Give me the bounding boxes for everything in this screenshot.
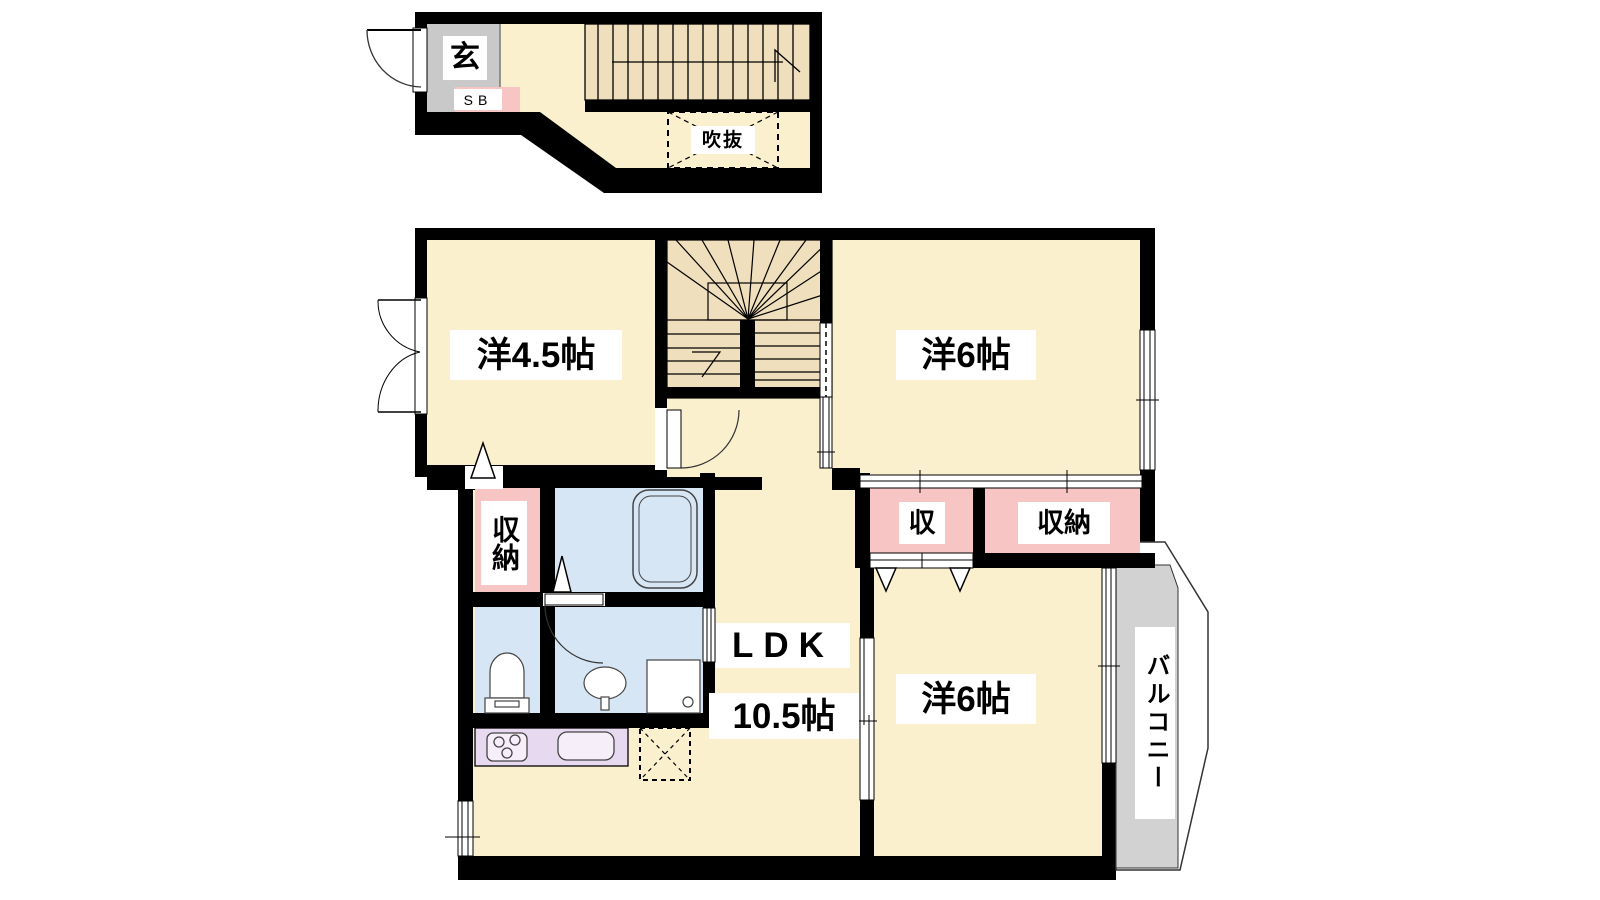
stove [487, 733, 527, 761]
bathroom [555, 488, 703, 592]
void-label: 吹抜 [691, 126, 755, 154]
closet-right-label: 収納 [1018, 502, 1110, 544]
ldk-label: LDK [716, 623, 850, 668]
room-6-top-label: 洋6帖 [896, 330, 1036, 380]
staircase-1f [585, 24, 810, 100]
ldk-wall-recess [703, 608, 715, 662]
entrance-label: 玄 [443, 36, 487, 80]
closet-small-label: 収 [899, 502, 945, 544]
double-casement-window [378, 298, 427, 414]
washing-machine-pan [647, 660, 700, 713]
kitchen [475, 728, 628, 766]
ldk-size-label: 10.5帖 [709, 693, 859, 739]
first-floor-plan [367, 12, 822, 193]
1f-stairs-bottom-wall [585, 100, 810, 112]
floorplan-drawing [0, 0, 1600, 900]
shoe-box-label: SB [454, 89, 502, 110]
closet-left-label: 収納 [481, 501, 527, 585]
room-6-bottom-label: 洋6帖 [896, 674, 1036, 724]
sliding-door-room6-bottom [857, 638, 877, 800]
floorplan-canvas: 玄 SB 吹抜 洋4.5帖 洋6帖 収納 収 収納 LDK 10.5帖 洋6帖 … [0, 0, 1600, 900]
kitchen-sink [558, 732, 614, 760]
room-45-label: 洋4.5帖 [450, 330, 622, 380]
stairwell-openings [817, 323, 835, 468]
entrance-door [367, 28, 427, 92]
balcony-label: バルコニー [1135, 627, 1175, 819]
